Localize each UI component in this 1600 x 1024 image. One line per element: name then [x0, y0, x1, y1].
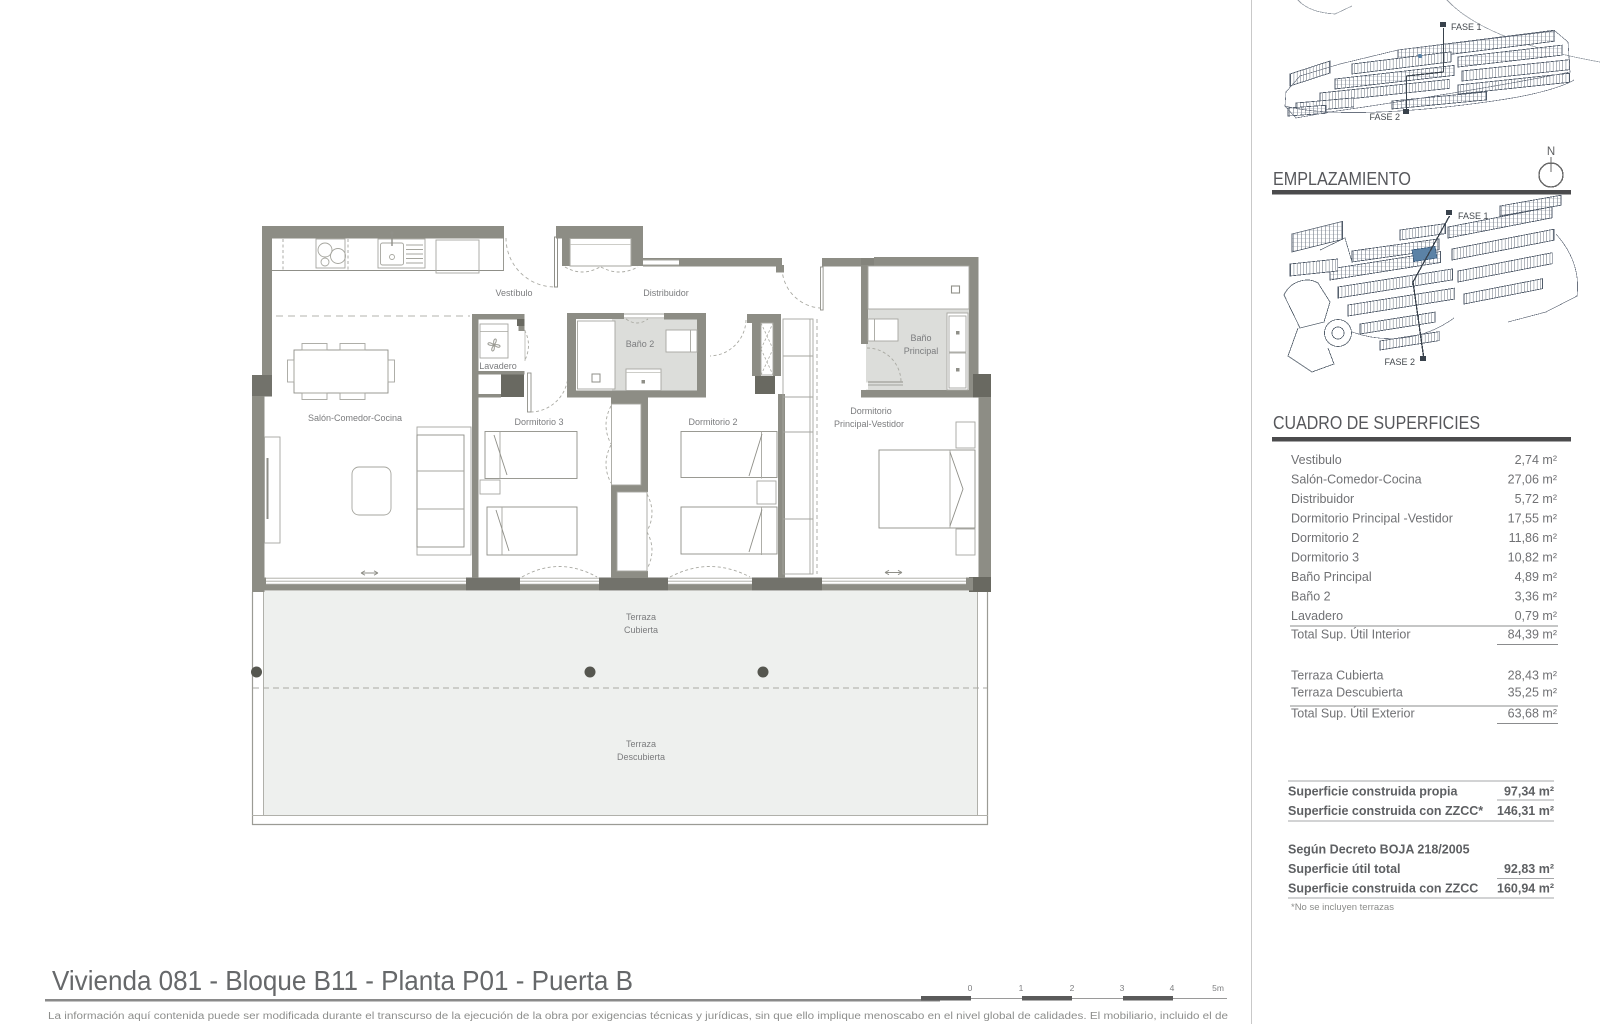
svg-text:Dormitorio 3: Dormitorio 3 — [1291, 551, 1359, 565]
svg-text:FASE 1: FASE 1 — [1458, 211, 1489, 221]
svg-text:FASE 2: FASE 2 — [1369, 112, 1400, 122]
svg-text:5,72 m²: 5,72 m² — [1515, 492, 1557, 506]
svg-text:17,55 m²: 17,55 m² — [1508, 512, 1557, 526]
svg-text:EMPLAZAMIENTO: EMPLAZAMIENTO — [1273, 168, 1411, 189]
svg-text:Dormitorio: Dormitorio — [850, 406, 892, 416]
svg-text:Baño 2: Baño 2 — [626, 339, 655, 349]
svg-text:Total Sup. Útil Interior: Total Sup. Útil Interior — [1291, 627, 1411, 642]
svg-text:Total Sup. Útil Exterior: Total Sup. Útil Exterior — [1291, 706, 1415, 721]
svg-text:Dormitorio Principal -Vestidor: Dormitorio Principal -Vestidor — [1291, 512, 1453, 526]
svg-text:Terraza Descubierta: Terraza Descubierta — [1291, 686, 1403, 700]
svg-text:Salón-Comedor-Cocina: Salón-Comedor-Cocina — [1291, 473, 1422, 487]
svg-text:Superficie construida con ZZCC: Superficie construida con ZZCC* — [1288, 804, 1483, 818]
svg-text:Terraza: Terraza — [626, 612, 656, 622]
svg-text:Lavadero: Lavadero — [1291, 609, 1343, 623]
svg-text:146,31 m²: 146,31 m² — [1497, 804, 1554, 818]
svg-text:Vestibulo: Vestibulo — [1291, 453, 1342, 467]
svg-text:La información aquí contenida: La información aquí contenida puede ser … — [48, 1011, 1228, 1022]
svg-text:10,82 m²: 10,82 m² — [1508, 551, 1557, 565]
svg-text:Terraza: Terraza — [626, 739, 656, 749]
svg-text:3,36 m²: 3,36 m² — [1515, 590, 1557, 604]
svg-text:Dormitorio 2: Dormitorio 2 — [688, 417, 737, 427]
svg-text:Salón-Comedor-Cocina: Salón-Comedor-Cocina — [308, 413, 402, 423]
svg-text:84,39 m²: 84,39 m² — [1508, 628, 1557, 642]
svg-text:Principal-Vestidor: Principal-Vestidor — [834, 419, 904, 429]
svg-text:Baño: Baño — [910, 333, 931, 343]
svg-text:4: 4 — [1170, 983, 1175, 993]
svg-text:Terraza Cubierta: Terraza Cubierta — [1291, 669, 1383, 683]
svg-text:FASE 2: FASE 2 — [1384, 357, 1415, 367]
svg-text:Superficie construida propia: Superficie construida propia — [1288, 785, 1459, 799]
svg-text:FASE 1: FASE 1 — [1451, 22, 1482, 32]
svg-text:28,43 m²: 28,43 m² — [1508, 669, 1557, 683]
svg-text:Descubierta: Descubierta — [617, 752, 665, 762]
svg-text:5m: 5m — [1212, 983, 1224, 993]
svg-text:Dormitorio 2: Dormitorio 2 — [1291, 531, 1359, 545]
svg-text:35,25 m²: 35,25 m² — [1508, 686, 1557, 700]
svg-text:97,34 m²: 97,34 m² — [1504, 785, 1554, 799]
svg-text:Distribuidor: Distribuidor — [643, 288, 689, 298]
svg-text:1: 1 — [1019, 983, 1024, 993]
svg-text:27,06 m²: 27,06 m² — [1508, 473, 1557, 487]
svg-text:0,79 m²: 0,79 m² — [1515, 609, 1557, 623]
svg-text:2,74 m²: 2,74 m² — [1515, 453, 1557, 467]
svg-text:160,94 m²: 160,94 m² — [1497, 882, 1554, 896]
svg-text:Dormitorio 3: Dormitorio 3 — [514, 417, 563, 427]
svg-text:92,83 m²: 92,83 m² — [1504, 862, 1554, 876]
svg-text:CUADRO DE SUPERFICIES: CUADRO DE SUPERFICIES — [1273, 412, 1480, 433]
svg-text:4,89 m²: 4,89 m² — [1515, 570, 1557, 584]
svg-text:Superficie útil total: Superficie útil total — [1288, 862, 1401, 876]
svg-text:Baño Principal: Baño Principal — [1291, 570, 1372, 584]
svg-text:Cubierta: Cubierta — [624, 625, 658, 635]
svg-text:Superficie construida con ZZCC: Superficie construida con ZZCC — [1288, 882, 1478, 896]
svg-text:Distribuidor: Distribuidor — [1291, 492, 1354, 506]
svg-text:11,86 m²: 11,86 m² — [1509, 531, 1557, 545]
svg-text:0: 0 — [968, 983, 973, 993]
svg-text:2: 2 — [1070, 983, 1075, 993]
svg-text:Vestíbulo: Vestíbulo — [495, 288, 532, 298]
svg-text:N: N — [1547, 146, 1555, 158]
svg-text:Vivienda 081 - Bloque B11 - Pl: Vivienda 081 - Bloque B11 - Planta P01 -… — [52, 965, 633, 996]
svg-text:*No se incluyen terrazas: *No se incluyen terrazas — [1291, 902, 1394, 913]
svg-text:63,68 m²: 63,68 m² — [1508, 707, 1557, 721]
svg-text:Según Decreto BOJA 218/2005: Según Decreto BOJA 218/2005 — [1288, 843, 1470, 857]
svg-text:Principal: Principal — [904, 346, 939, 356]
svg-text:3: 3 — [1120, 983, 1125, 993]
svg-text:Lavadero: Lavadero — [479, 361, 517, 371]
svg-text:Baño 2: Baño 2 — [1291, 590, 1331, 604]
